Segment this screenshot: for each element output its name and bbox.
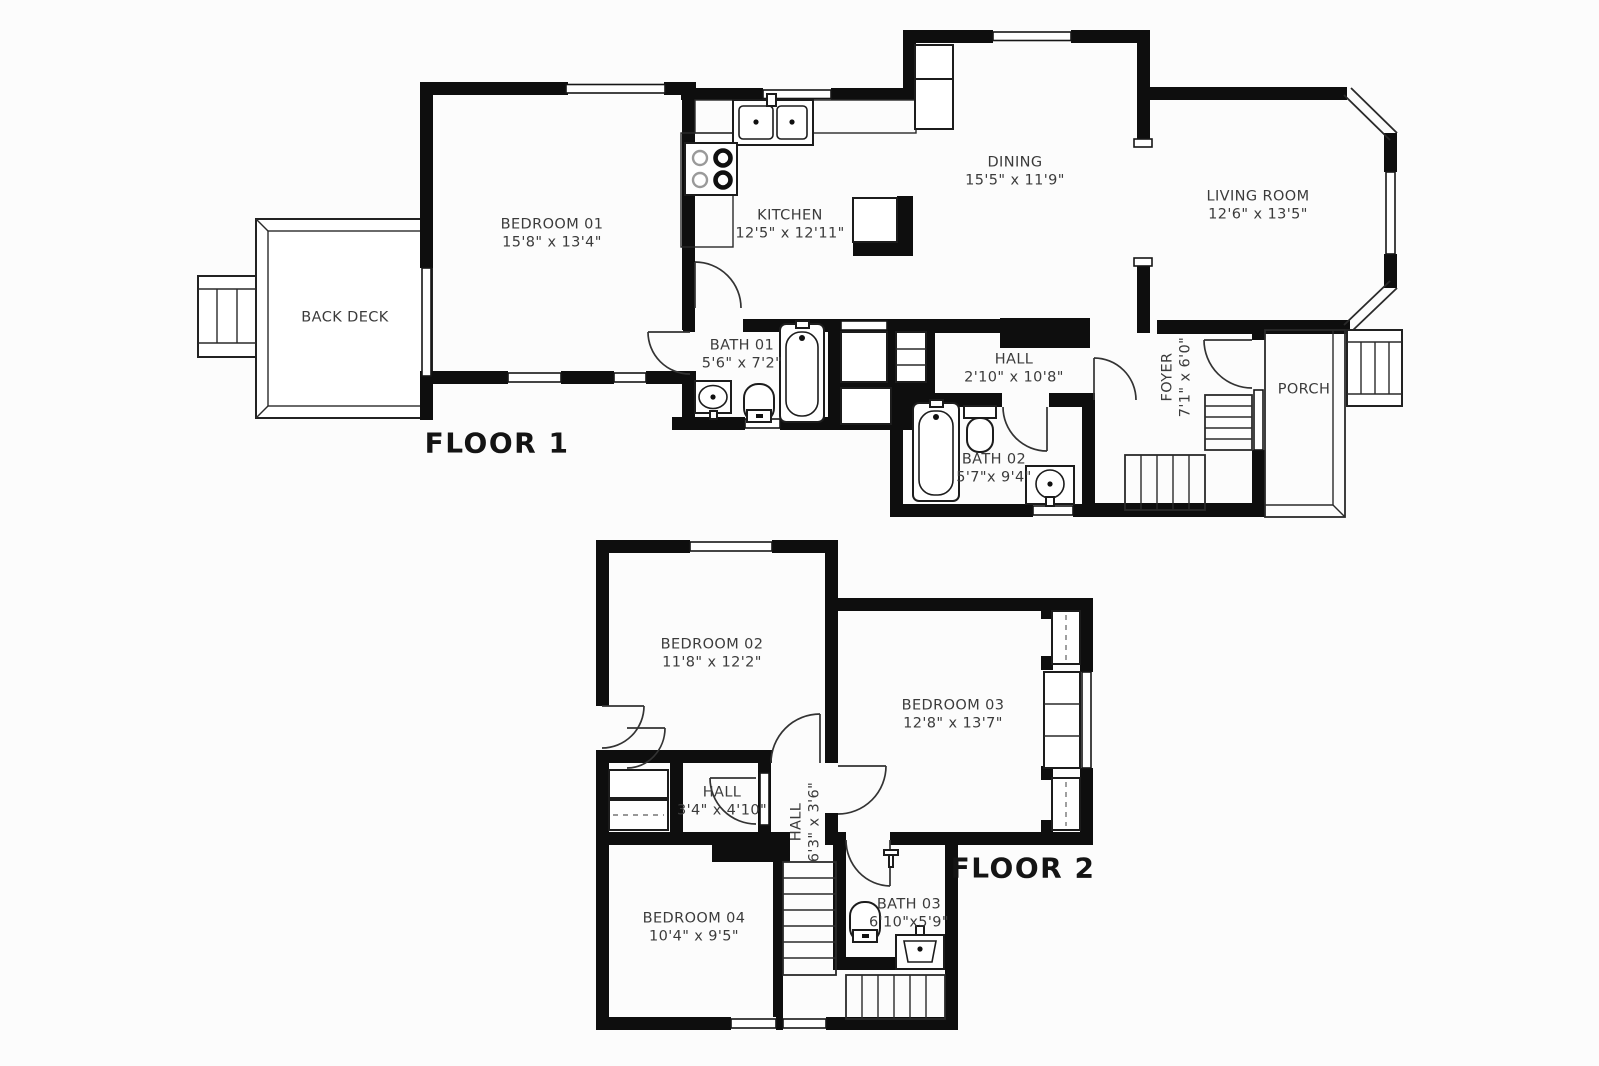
bathtub-icon [780,321,824,422]
floor-2-title: FLOOR 2 [951,852,1096,885]
door-bath-02-icon [1003,407,1047,451]
deck-stairs-icon [198,276,256,357]
room-dims: 15'8" x 13'4" [501,234,604,252]
faucet-icon [884,850,898,867]
floor1-plan [198,30,1402,517]
room-dims: 12'8" x 13'7" [902,715,1005,733]
door-bedroom-02-icon [771,714,820,763]
door-entry-icon [1204,340,1252,388]
door-foyer-icon [1094,358,1136,400]
floor2-walls [596,540,1093,1030]
room-dims: 12'6" x 13'5" [1206,206,1309,224]
porch-steps-icon [1347,330,1402,406]
room-dims: 5'7"x 9'4" [956,469,1031,487]
jamb-icon [1134,258,1152,266]
window-icon [508,373,561,382]
room-name: DINING [965,155,1065,173]
room-name: BEDROOM 02 [661,637,764,655]
door-bath-03-icon [846,840,890,886]
room-name: BATH 03 [869,897,949,915]
sink-icon [1026,466,1074,506]
room-label-bath-02: BATH 02 5'7"x 9'4" [956,452,1031,487]
room-name: LIVING ROOM [1206,189,1309,207]
window-icon [783,1019,826,1028]
toilet-icon [964,406,996,452]
room-label-bedroom-02: BEDROOM 02 11'8" x 12'2" [661,637,764,672]
room-dims: 7'1" x 6'0" [1177,337,1195,417]
room-label-hall-f1: HALL 2'10" x 10'8" [964,352,1064,387]
room-name: FOYER [1160,337,1178,417]
bay-window-icon [1386,172,1395,254]
room-label-bedroom-03: BEDROOM 03 12'8" x 13'7" [902,698,1005,733]
room-label-hall-upper: HALL 3'4" x 4'10" [677,785,767,820]
window-icon [1082,672,1091,768]
room-name: KITCHEN [735,208,844,226]
door-bedroom-01-icon [648,332,690,374]
room-name: BATH 02 [956,452,1031,470]
island-counter-icon [853,198,897,242]
room-label-living-room: LIVING ROOM 12'6" x 13'5" [1206,189,1309,224]
room-name: BEDROOM 04 [643,911,746,929]
room-dims: 5'6" x 7'2" [702,355,782,373]
room-dims: 6'10"x5'9" [869,914,949,932]
room-dims: 3'4" x 4'10" [677,802,767,820]
room-name: BACK DECK [301,309,388,327]
door-bedroom-03-icon [838,766,886,814]
room-name: HALL [789,782,807,862]
sink-icon [896,926,944,969]
window-icon [614,373,646,382]
room-label-foyer: FOYER 7'1" x 6'0" [1160,337,1195,417]
door-kitchen-icon [695,262,741,308]
floor-plan-canvas: BACK DECK BEDROOM 01 15'8" x 13'4" KITCH… [0,0,1599,1066]
window-icon [690,542,772,551]
floor-plan-drawing [0,0,1599,1066]
toilet-icon [744,384,774,422]
room-dims: 12'5" x 12'11" [735,225,844,243]
room-label-kitchen: KITCHEN 12'5" x 12'11" [735,208,844,243]
fridge-icon [915,45,953,129]
opening-icon [841,321,887,330]
jamb-icon [1134,139,1152,147]
porch-structure [1265,330,1402,517]
room-label-porch: PORCH [1278,381,1331,399]
floor-1-title: FLOOR 1 [425,427,570,460]
room-name: BATH 01 [702,338,782,356]
room-label-hall-stair: HALL 6'3" x 3'6" [789,782,824,862]
room-name: HALL [677,785,767,803]
room-dims: 2'10" x 10'8" [964,369,1064,387]
room-name: BEDROOM 03 [902,698,1005,716]
bathtub-icon [913,400,959,501]
window-icon [1254,390,1263,450]
room-dims: 10'4" x 9'5" [643,928,746,946]
window-icon [1033,506,1073,515]
window-icon [731,1019,776,1028]
window-icon [993,32,1071,41]
window-seat-icon [1044,672,1080,768]
sink-icon [695,381,731,419]
room-label-dining: DINING 15'5" x 11'9" [965,155,1065,190]
room-name: HALL [964,352,1064,370]
room-label-bath-03: BATH 03 6'10"x5'9" [869,897,949,932]
kitchen-sink-icon [733,94,813,145]
floor2-plan [596,540,1093,1030]
stove-icon [685,143,737,195]
slider-window-icon [422,268,431,376]
window-icon [566,85,665,94]
room-name: PORCH [1278,381,1331,399]
room-dims: 6'3" x 3'6" [806,782,824,862]
room-dims: 15'5" x 11'9" [965,172,1065,190]
room-label-bedroom-01: BEDROOM 01 15'8" x 13'4" [501,217,604,252]
room-label-back-deck: BACK DECK [301,309,388,327]
room-label-bath-01: BATH 01 5'6" x 7'2" [702,338,782,373]
room-dims: 11'8" x 12'2" [661,654,764,672]
room-label-bedroom-04: BEDROOM 04 10'4" x 9'5" [643,911,746,946]
room-name: BEDROOM 01 [501,217,604,235]
